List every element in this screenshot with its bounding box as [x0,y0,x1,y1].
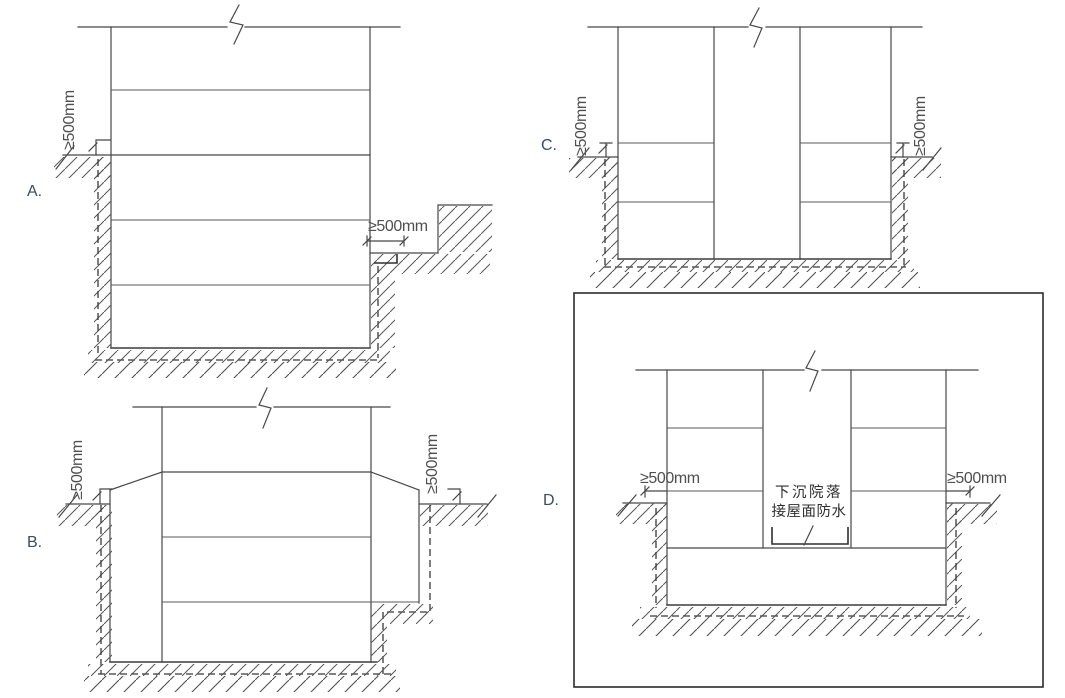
dim-label-d-left: ≥500mm [640,470,700,487]
diagram-option-a[interactable]: A. ≥500mm ≥500mm [27,5,492,378]
soil-hatch-bottom [84,676,400,692]
dim-label-b-right: ≥500mm [424,434,441,494]
building-walls [162,407,371,662]
wall-hatch-right [371,274,395,348]
floor-lines [111,90,370,285]
annotation-line1: 下沉院落 [775,484,843,501]
floor-lines [162,537,419,602]
soil-hatch-bottom [590,272,920,288]
courtyard-waterproofing-slash [804,526,813,545]
underslab-hatch [640,607,970,619]
option-label-a[interactable]: A. [27,183,42,200]
courtyard-waterproofing-bracket [772,527,848,544]
wall-hatch-left [94,157,111,348]
section-break-symbol [806,351,818,391]
dim-label-c-right: ≥500mm [912,96,929,156]
wall-hatch-left [96,505,112,662]
height-tick-right [448,489,461,504]
dim-label-b-left: ≥500mm [69,440,86,500]
height-tick-left [89,140,110,155]
option-label-d[interactable]: D. [543,492,559,509]
dim-label-a-right: ≥500mm [368,218,428,235]
protection-slopes [110,472,419,490]
option-label-b[interactable]: B. [27,534,42,551]
underslab-hatch [596,260,914,272]
soil-hatch-bottom [632,619,982,636]
membrane-right-wall [383,505,430,674]
lower-ground-hatch-right [371,254,490,274]
soil-hatch-bottom [84,362,396,378]
section-break-symbol [230,5,243,44]
central-shaft-walls [714,27,800,259]
figure-canvas: A. ≥500mm ≥500mm B. [0,0,1065,698]
diagram-option-d[interactable]: D. ≥500mm ≥500mm 下沉院落 接屋面防水 [543,293,1043,687]
annotation-line2: 接屋面防水 [772,503,847,520]
courtyard-walls [763,370,851,548]
floor-lines [667,428,946,491]
waterproofing-options-figure: A. ≥500mm ≥500mm B. [0,0,1065,698]
building-walls [111,27,370,348]
underslab-hatch [88,350,390,363]
height-tick-left [93,489,112,504]
upper-ground-hatch-right [439,206,492,252]
section-break-symbol [750,8,762,47]
height-tick-right [896,143,909,157]
diagram-option-c[interactable]: C. ≥500mm ≥500mm [541,8,941,288]
diagram-option-b[interactable]: B. ≥500mm ≥500mm [27,388,496,692]
wall-hatch-right [892,157,908,259]
section-break-symbol [259,388,271,428]
underslab-hatch [88,664,396,676]
wall-hatch-left [652,503,667,605]
dim-label-c-left: ≥500mm [573,96,590,156]
dim-label-a-left: ≥500mm [61,90,78,150]
dim-line-d-left [641,486,667,497]
dim-line-d-right [946,486,974,497]
dim-label-d-right: ≥500mm [947,470,1007,487]
height-tick-left [599,143,612,157]
option-label-c[interactable]: C. [541,137,557,154]
step-hatch-right [371,604,433,624]
wall-hatch-right [947,503,962,605]
wall-hatch-right [371,624,387,662]
floor-lines [618,143,891,202]
